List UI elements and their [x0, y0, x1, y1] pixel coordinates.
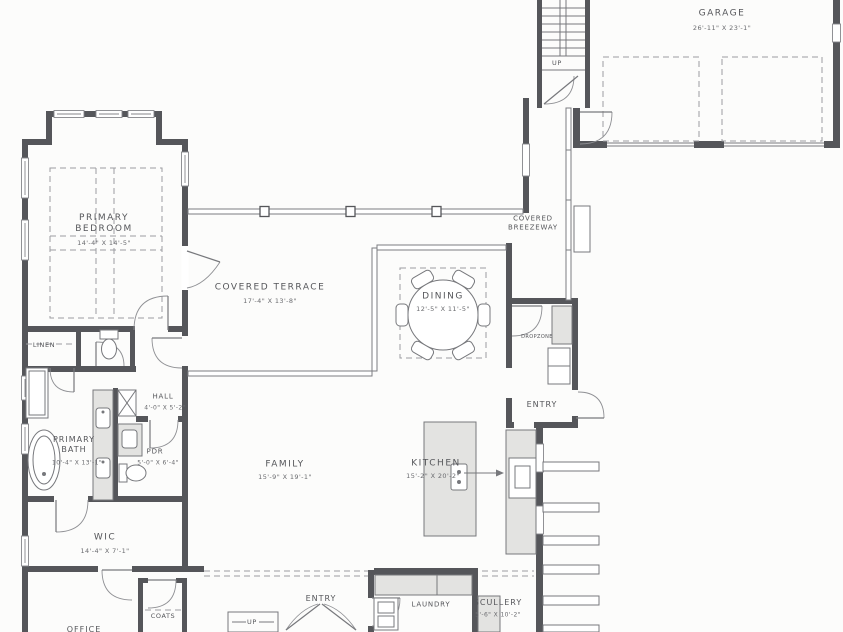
room-dims-primary-bedroom: 14'-4" X 14'-5" — [77, 239, 131, 247]
room-dims-kitchen: 15'-2" X 20'-2" — [406, 472, 460, 480]
room-label-family: FAMILY — [265, 459, 304, 470]
fixtures — [26, 206, 599, 632]
planter — [574, 206, 590, 252]
stair-up-label-upper: UP — [552, 59, 562, 67]
room-label-garage: GARAGE — [699, 8, 746, 19]
room-dims-pdr: 5'-0" X 6'-4" — [137, 459, 179, 467]
dropzone-cabinet — [552, 306, 572, 344]
room-dims-covered-terrace: 17'-4" X 13'-8" — [243, 297, 297, 305]
room-label-scullery: SCULLERY — [474, 598, 522, 608]
room-label-covered-breezeway: COVERED BREEZEWAY — [496, 214, 570, 232]
room-label-covered-terrace: COVERED TERRACE — [215, 282, 326, 293]
floor-plan: GARAGE 26'-11" X 23'-1" PRIMARY BEDROOM … — [0, 0, 843, 632]
room-dims-primary-bath: 10'-4" X 13'-1" — [52, 459, 102, 467]
exterior-steps — [543, 462, 599, 632]
room-label-hall: HALL — [152, 393, 173, 402]
room-dims-scullery: 5'-6" X 10'-2" — [475, 611, 521, 619]
room-label-entry-side: ENTRY — [527, 400, 558, 410]
room-label-primary-bath: PRIMARY BATH — [44, 435, 104, 455]
room-label-dropzone: DROPZONE — [521, 334, 553, 340]
room-label-primary-bedroom: PRIMARY BEDROOM — [62, 213, 146, 236]
room-dims-hall: 4'-0" X 5'-2" — [144, 404, 186, 412]
room-label-pdr: PDR — [147, 448, 164, 457]
room-dims-garage: 26'-11" X 23'-1" — [693, 24, 751, 32]
toilet — [100, 330, 118, 339]
room-label-entry-main: ENTRY — [306, 594, 337, 604]
room-label-linen: LINEN — [33, 341, 55, 349]
room-dims-wic: 14'-4" X 7'-1" — [80, 547, 129, 555]
room-label-dining: DINING — [422, 291, 464, 302]
staircase-upper — [542, 0, 585, 70]
garage-bay-2 — [722, 57, 822, 141]
room-label-kitchen: KITCHEN — [411, 458, 461, 469]
room-label-office: OFFICE — [67, 625, 102, 632]
room-label-laundry: LAUNDRY — [412, 601, 451, 610]
garage-bay-1 — [603, 57, 699, 141]
room-label-coats: COATS — [151, 612, 176, 620]
laundry-counter — [375, 575, 472, 595]
room-label-wic: WIC — [94, 532, 116, 543]
room-dims-dining: 12'-5" X 11'-5" — [416, 305, 470, 313]
room-dims-family: 15'-9" X 19'-1" — [258, 473, 312, 481]
floor-plan-drawing — [0, 0, 843, 632]
stair-up-label-lower: UP — [247, 618, 257, 626]
